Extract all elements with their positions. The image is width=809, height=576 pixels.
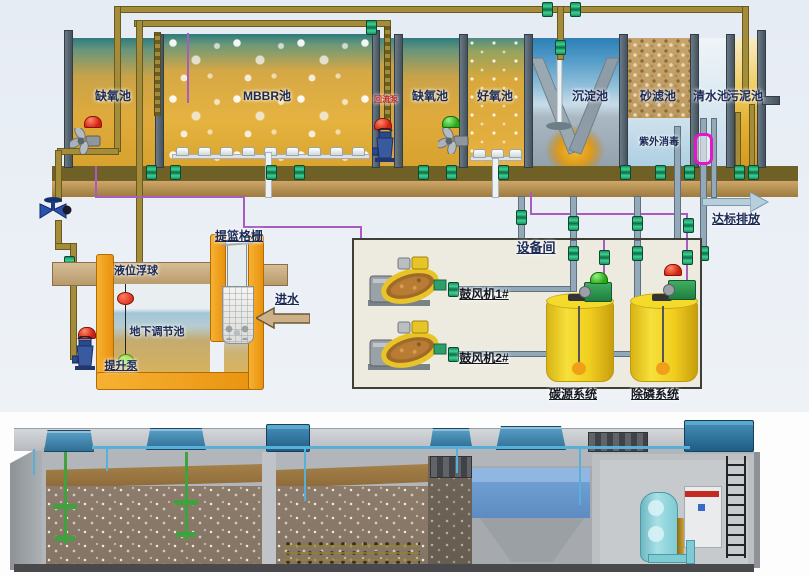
valve-icon bbox=[599, 250, 610, 265]
regulating-tank-label: 地下调节池 bbox=[130, 326, 185, 339]
flanged-pipe bbox=[154, 32, 161, 116]
valve-icon bbox=[570, 2, 581, 17]
deck-grating bbox=[588, 432, 648, 452]
dosing-pipe bbox=[95, 166, 97, 197]
floor-pipe bbox=[648, 554, 690, 563]
diffuser-icon bbox=[198, 147, 211, 156]
internal-grating bbox=[430, 456, 472, 478]
dosing-pipe bbox=[530, 213, 687, 215]
deck-pipe bbox=[92, 446, 690, 449]
blower2-label: 鼓风机2# bbox=[459, 352, 508, 366]
mixer-shaft bbox=[185, 452, 188, 540]
tank-wall bbox=[524, 34, 533, 168]
roots-blower-icon bbox=[368, 320, 448, 372]
wall-ledge bbox=[762, 96, 780, 105]
ladder-icon bbox=[726, 456, 746, 558]
mixer-icon bbox=[438, 128, 470, 154]
valve-icon bbox=[542, 2, 553, 17]
screenings bbox=[224, 324, 250, 340]
dosing-pipe bbox=[243, 226, 362, 228]
dosing-pipe bbox=[530, 192, 532, 215]
inflow-arrow-icon bbox=[256, 306, 310, 330]
diffuser-icon bbox=[176, 147, 189, 156]
valve-icon bbox=[568, 216, 579, 231]
tank-side-face bbox=[754, 452, 760, 568]
valve-icon bbox=[568, 246, 579, 261]
diffuser-icon bbox=[242, 147, 255, 156]
valve-icon bbox=[448, 282, 459, 297]
lift-pump-icon bbox=[72, 336, 98, 372]
vessel-port bbox=[648, 500, 664, 516]
vessel-port bbox=[648, 526, 664, 542]
tank-label-mbbr: MBBR池 bbox=[243, 90, 291, 104]
diffuser-icon bbox=[509, 149, 522, 158]
deck-pipe-drop bbox=[106, 449, 108, 471]
tank-side-face bbox=[10, 446, 42, 570]
valve-icon bbox=[366, 20, 377, 35]
valve-icon bbox=[682, 250, 693, 265]
cabinet-screen bbox=[698, 504, 705, 511]
mixer-icon bbox=[70, 128, 102, 154]
valve-icon bbox=[683, 218, 694, 233]
tank-bottom-edge bbox=[14, 564, 754, 572]
discharge-label: 达标排放 bbox=[712, 213, 760, 227]
diffuser-icon bbox=[352, 147, 365, 156]
float-label: 液位浮球 bbox=[114, 265, 158, 278]
valve-icon bbox=[555, 40, 566, 55]
mixer-blade bbox=[176, 532, 196, 537]
flanged-pipe bbox=[384, 26, 391, 126]
alarm-light-red-icon bbox=[84, 116, 102, 128]
pit-floor bbox=[96, 372, 264, 390]
valve-icon bbox=[448, 347, 459, 362]
dosing-pipe bbox=[95, 196, 245, 198]
valve-icon bbox=[418, 165, 429, 180]
inflow-label: 进水 bbox=[275, 293, 299, 307]
alarm-light-green-icon bbox=[442, 116, 460, 128]
pipe bbox=[55, 150, 62, 202]
pipe bbox=[134, 20, 391, 27]
valve-icon bbox=[632, 216, 643, 231]
stirrer-blade bbox=[656, 362, 670, 375]
reflux-pump-label: 回流泵 bbox=[374, 95, 398, 104]
diffuser-icon bbox=[220, 147, 233, 156]
deck-pipe-drop bbox=[579, 449, 581, 505]
alarm-light-green-icon bbox=[590, 272, 608, 284]
carbon-system-label: 碳源系统 bbox=[549, 388, 597, 402]
pipe bbox=[742, 6, 749, 100]
diffuser-icon bbox=[308, 147, 321, 156]
cabinet-stripe bbox=[685, 491, 719, 497]
stirrer-blade bbox=[572, 362, 586, 375]
control-room-box bbox=[684, 420, 754, 452]
lift-pump-label: 提升泵 bbox=[105, 360, 138, 373]
tank-label-sand-filter: 砂滤池 bbox=[640, 90, 676, 104]
uv-lamp-icon bbox=[694, 133, 713, 165]
dosing-pipe bbox=[243, 196, 245, 228]
valve-icon bbox=[734, 165, 745, 180]
tank-label-anoxic2: 缺氧池 bbox=[412, 90, 448, 104]
blower1-label: 鼓风机1# bbox=[459, 288, 508, 302]
floor-pipe bbox=[686, 540, 695, 564]
tank-label-aerobic: 好氧池 bbox=[477, 90, 513, 104]
pipe bbox=[116, 6, 749, 13]
valve-icon bbox=[748, 165, 759, 180]
diffuser-icon bbox=[286, 147, 299, 156]
float-ball-red-icon bbox=[117, 292, 134, 305]
valve-icon bbox=[146, 165, 157, 180]
tank-label-anoxic1: 缺氧池 bbox=[95, 90, 131, 104]
uv-label: 紫外消毒 bbox=[639, 137, 679, 149]
discharge-pipe bbox=[702, 198, 754, 206]
hatch-icon bbox=[44, 430, 94, 452]
diffuser-icon bbox=[473, 149, 486, 158]
diffuser-icon bbox=[491, 149, 504, 158]
valve-icon bbox=[655, 165, 666, 180]
roots-blower-icon bbox=[368, 256, 448, 308]
valve-icon bbox=[632, 246, 643, 261]
gate-valve-icon bbox=[38, 196, 72, 222]
basket-hanger bbox=[246, 244, 247, 288]
valve-icon bbox=[294, 165, 305, 180]
deck-pipe-drop bbox=[33, 449, 35, 475]
clarifier-water bbox=[472, 482, 590, 518]
clarifier-water-top bbox=[472, 468, 590, 482]
pipe bbox=[114, 6, 121, 152]
tank-label-sludge: 污泥池 bbox=[727, 90, 763, 104]
alarm-light-red-icon bbox=[664, 264, 682, 276]
base-platform bbox=[52, 180, 798, 197]
deck-pipe-drop bbox=[304, 449, 306, 501]
support-beam bbox=[262, 264, 288, 286]
valve-icon bbox=[446, 165, 457, 180]
mixer-shaft bbox=[64, 452, 67, 544]
submersible-pump-icon bbox=[372, 128, 398, 164]
pipe bbox=[735, 112, 741, 168]
pipe bbox=[749, 104, 755, 168]
media-water-anoxic bbox=[46, 486, 262, 568]
deck-pipe-drop bbox=[456, 449, 458, 473]
mixer-blade bbox=[55, 536, 75, 541]
dosing-pump-motor bbox=[663, 284, 675, 296]
tank-wall bbox=[619, 34, 628, 168]
equipment-room-label: 设备间 bbox=[516, 241, 555, 256]
discharge-arrow-icon bbox=[750, 192, 770, 212]
process-schematic: 缺氧池 MBBR池 回流泵 缺氧池 好氧池 沉淀池 砂滤池 清水池 污泥池 紫外… bbox=[0, 0, 809, 412]
screen-label: 提篮格栅 bbox=[215, 230, 263, 244]
mixer-blade bbox=[174, 500, 198, 505]
valve-icon bbox=[684, 165, 695, 180]
valve-icon bbox=[266, 165, 277, 180]
wastewater-treatment-diagram: 缺氧池 MBBR池 回流泵 缺氧池 好氧池 沉淀池 砂滤池 清水池 污泥池 紫外… bbox=[0, 0, 809, 576]
mixer-blade bbox=[53, 504, 77, 509]
valve-icon bbox=[516, 210, 527, 225]
dosing-pump-motor bbox=[579, 286, 591, 298]
cutaway-render bbox=[0, 412, 809, 576]
diffuser-icon bbox=[330, 147, 343, 156]
valve-icon bbox=[170, 165, 181, 180]
basket-hanger bbox=[227, 246, 228, 288]
partition-wall bbox=[262, 452, 276, 568]
aeration-grid bbox=[284, 540, 420, 564]
stirrer-shaft bbox=[578, 306, 580, 368]
valve-icon bbox=[498, 165, 509, 180]
sand-filter-media bbox=[626, 38, 690, 120]
tank-label-sedimentation: 沉淀池 bbox=[572, 90, 608, 104]
stirrer-shaft bbox=[662, 306, 664, 368]
tank-label-clean-water: 清水池 bbox=[693, 90, 729, 104]
phosphorus-system-label: 除磷系统 bbox=[631, 388, 679, 402]
hatch-icon bbox=[430, 428, 472, 448]
pipe bbox=[136, 20, 143, 278]
dosing-pipe bbox=[187, 33, 189, 103]
valve-icon bbox=[620, 165, 631, 180]
